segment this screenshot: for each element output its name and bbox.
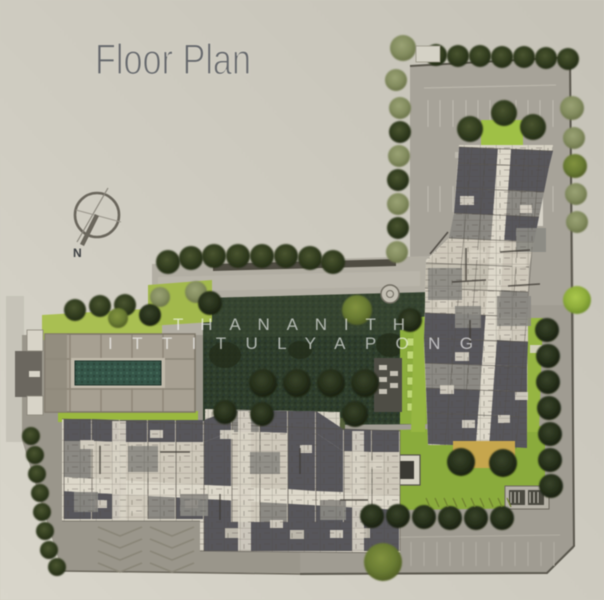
svg-text:THANANITH: THANANITH (173, 315, 405, 334)
svg-text:Floor Plan: Floor Plan (95, 36, 251, 84)
svg-text:N: N (73, 246, 82, 260)
